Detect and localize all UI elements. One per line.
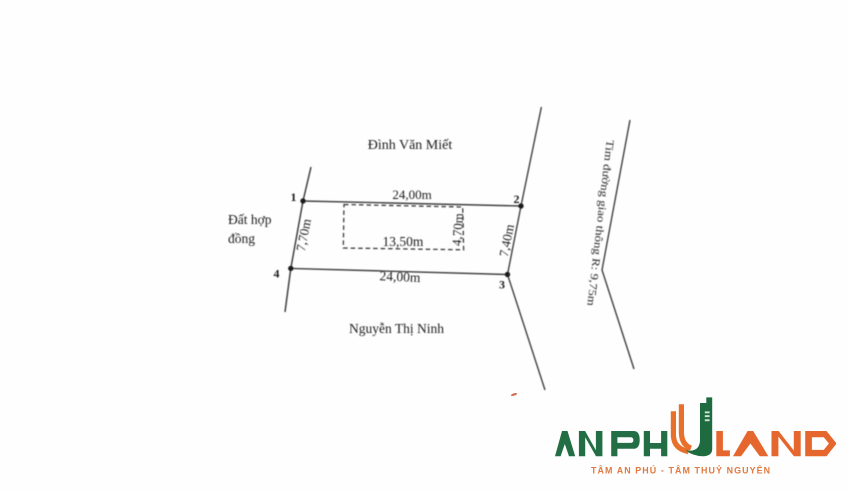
svg-text:Đất hợp: Đất hợp: [228, 212, 272, 227]
svg-text:đồng: đồng: [228, 231, 255, 246]
svg-text:Nguyễn Thị Ninh: Nguyễn Thị Ninh: [349, 321, 444, 336]
svg-text:2: 2: [514, 192, 520, 206]
svg-text:7,70m: 7,70m: [293, 217, 314, 252]
svg-text:3: 3: [499, 278, 505, 292]
svg-text:1: 1: [291, 190, 297, 204]
svg-text:24,00m: 24,00m: [392, 187, 431, 202]
svg-text:7,40m: 7,40m: [496, 223, 517, 258]
svg-text:13,50m: 13,50m: [383, 234, 424, 249]
svg-text:24,00m: 24,00m: [379, 268, 421, 285]
svg-text:TÂM AN PHÚ - TÂM THUỶ NGUYÊN: TÂM AN PHÚ - TÂM THUỶ NGUYÊN: [591, 464, 770, 475]
svg-text:4: 4: [274, 267, 280, 281]
svg-text:Đình Văn Miết: Đình Văn Miết: [368, 138, 453, 153]
svg-text:4,70m: 4,70m: [449, 213, 466, 247]
